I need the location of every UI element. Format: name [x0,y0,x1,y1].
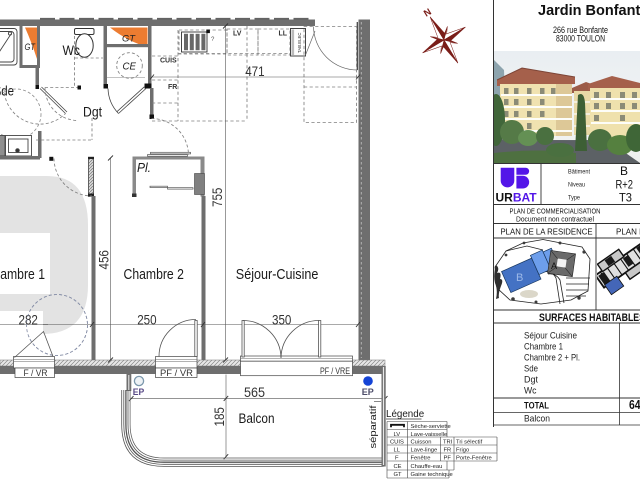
svg-text:Balcon: Balcon [524,414,550,425]
svg-text:Séjour Cuisine: Séjour Cuisine [524,331,577,342]
svg-text:Cuisson: Cuisson [411,440,432,446]
svg-text:Type: Type [568,195,580,202]
svg-text:Balcon: Balcon [239,411,275,426]
svg-text:PLAN DE LA RESIDENCE: PLAN DE LA RESIDENCE [501,228,593,237]
svg-text:Chambre 1: Chambre 1 [0,267,45,283]
svg-text:TOTAL: TOTAL [524,401,549,411]
svg-text:Légende: Légende [386,409,425,420]
svg-text:Sde: Sde [0,83,14,99]
svg-text:Chambre 1: Chambre 1 [524,342,563,353]
svg-text:T3: T3 [619,193,632,205]
svg-text:Document non contractuel: Document non contractuel [516,215,594,224]
svg-text:Jardin Bonfante: Jardin Bonfante [538,3,640,19]
svg-text:Tri sélectif: Tri sélectif [456,440,483,446]
svg-text:B: B [620,166,628,178]
svg-text:Dgt: Dgt [83,104,102,120]
svg-text:TRI: TRI [443,440,453,446]
svg-text:B: B [516,272,523,284]
svg-text:Pl.: Pl. [137,160,151,175]
svg-text:GT: GT [122,34,136,45]
svg-text:Lave-linge: Lave-linge [411,448,438,454]
svg-text:LV: LV [233,31,242,38]
svg-text:URBAT: URBAT [496,191,538,205]
svg-text:FR: FR [444,448,452,454]
svg-text:64: 64 [629,398,640,412]
svg-text:Séjour-Cuisine: Séjour-Cuisine [236,267,319,283]
svg-text:Wc: Wc [63,42,81,58]
svg-text:Wc: Wc [524,386,537,397]
svg-text:GT: GT [394,472,403,478]
svg-text:Chauffe-eau: Chauffe-eau [411,464,443,470]
svg-text:CE: CE [394,464,402,470]
svg-text:565: 565 [244,384,265,400]
svg-text:PLAN DE L'ETAGE: PLAN DE L'ETAGE [616,228,640,237]
svg-text:Porte-Fenêtre: Porte-Fenêtre [456,456,492,462]
svg-text:456: 456 [96,250,112,270]
svg-text:LL: LL [279,31,288,38]
svg-text:Niveau: Niveau [568,182,585,189]
svg-text:A: A [551,261,557,271]
svg-text:CUIS: CUIS [390,440,404,446]
svg-text:EP: EP [362,387,375,398]
svg-text:LL: LL [394,448,401,454]
svg-text:185: 185 [211,407,227,427]
svg-text:F / VR: F / VR [24,368,48,378]
svg-text:PF / VR: PF / VR [160,368,194,378]
svg-text:séparatif: séparatif [368,405,379,448]
svg-text:GT: GT [25,42,37,52]
svg-text:EP: EP [133,387,145,398]
svg-text:Gaine technique: Gaine technique [411,472,453,478]
svg-text:Chambre 2 + Pl.: Chambre 2 + Pl. [524,353,580,364]
svg-text:R+2: R+2 [616,180,634,192]
svg-text:Chambre 2: Chambre 2 [124,267,184,283]
svg-text:Sèche-serviette: Sèche-serviette [411,424,451,430]
svg-text:Bâtiment: Bâtiment [568,169,590,176]
svg-text:PF: PF [444,456,452,462]
svg-text:471: 471 [245,63,265,79]
svg-text:TAB.ELEC: TAB.ELEC [297,33,302,53]
svg-text:SURFACES HABITABLES: SURFACES HABITABLES [539,312,640,324]
svg-text:Frigo: Frigo [456,448,469,454]
svg-text:FR: FR [168,84,177,91]
svg-text:Fenêtre: Fenêtre [411,456,431,462]
svg-text:LV: LV [394,432,401,438]
svg-text:CUIS: CUIS [160,58,177,65]
svg-text:CE: CE [123,61,137,73]
svg-text:83000 TOULON: 83000 TOULON [556,34,605,44]
svg-text:Sde: Sde [524,364,538,375]
svg-text:F: F [395,456,399,462]
svg-text:Lave-vaisselle: Lave-vaisselle [411,432,448,438]
svg-text:PF / VRE: PF / VRE [320,366,350,376]
svg-text:250: 250 [137,312,157,328]
svg-text:755: 755 [209,187,225,207]
svg-text:Dgt: Dgt [524,375,538,386]
svg-text:350: 350 [272,312,292,328]
